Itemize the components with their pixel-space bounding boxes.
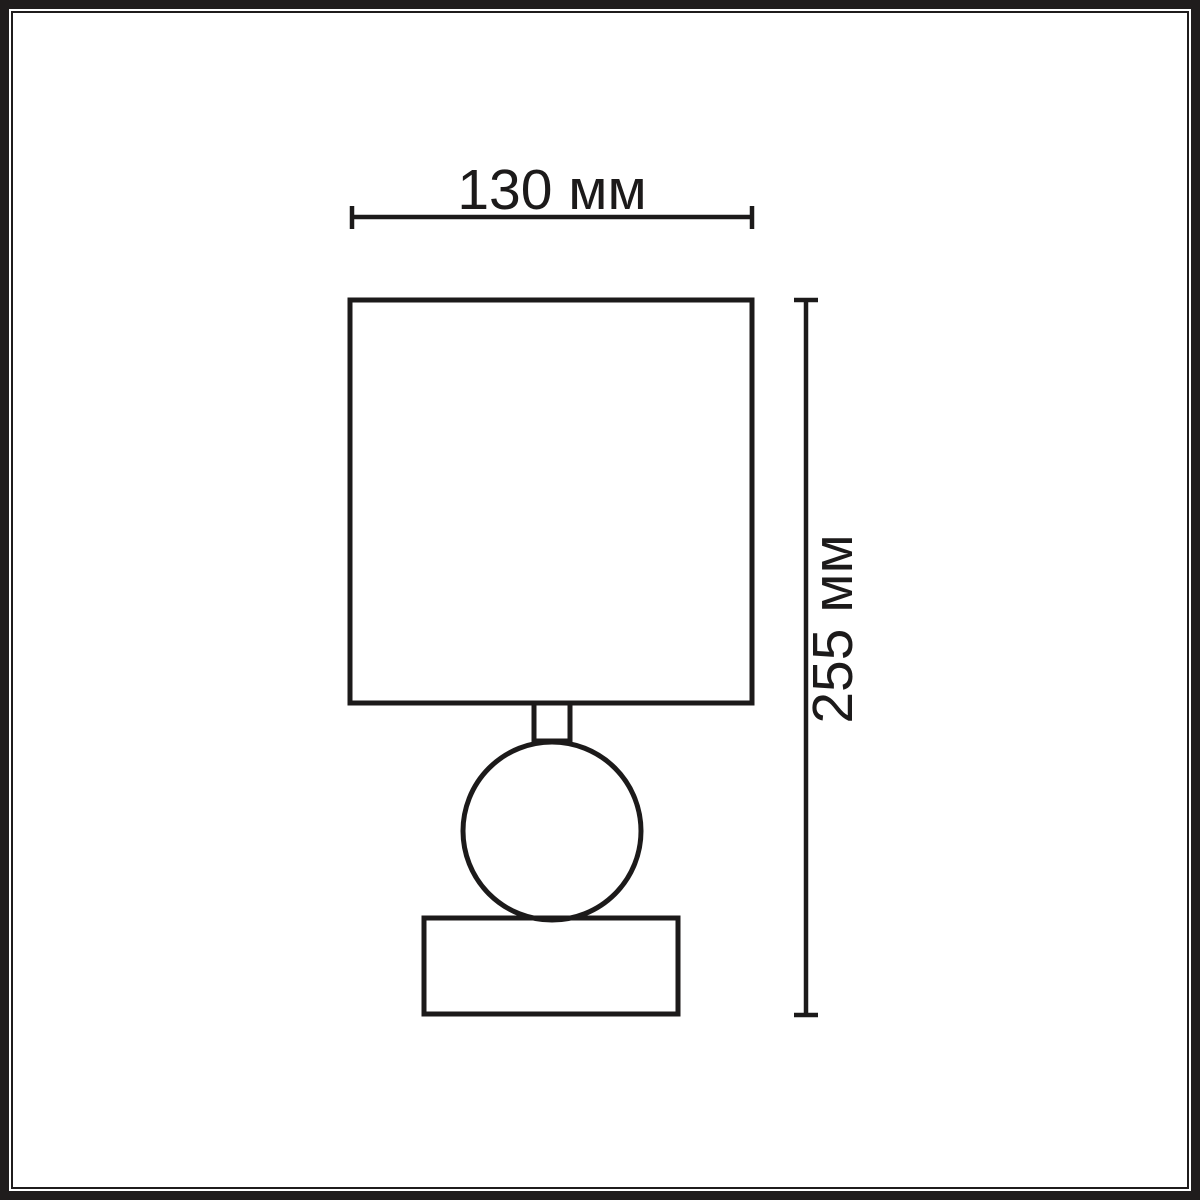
lamp-neck-outline <box>534 703 570 741</box>
drawing-page: 130 мм 255 мм <box>0 0 1200 1200</box>
drawing-strokes-group <box>350 206 818 1015</box>
lamp-dimension-diagram: 130 мм 255 мм <box>0 0 1200 1200</box>
height-dimension-label: 255 мм <box>801 534 865 723</box>
lamp-shade-outline <box>350 300 752 703</box>
lamp-sphere-outline <box>463 742 641 920</box>
width-dimension-label: 130 мм <box>457 158 646 222</box>
lamp-base-outline <box>424 918 678 1014</box>
